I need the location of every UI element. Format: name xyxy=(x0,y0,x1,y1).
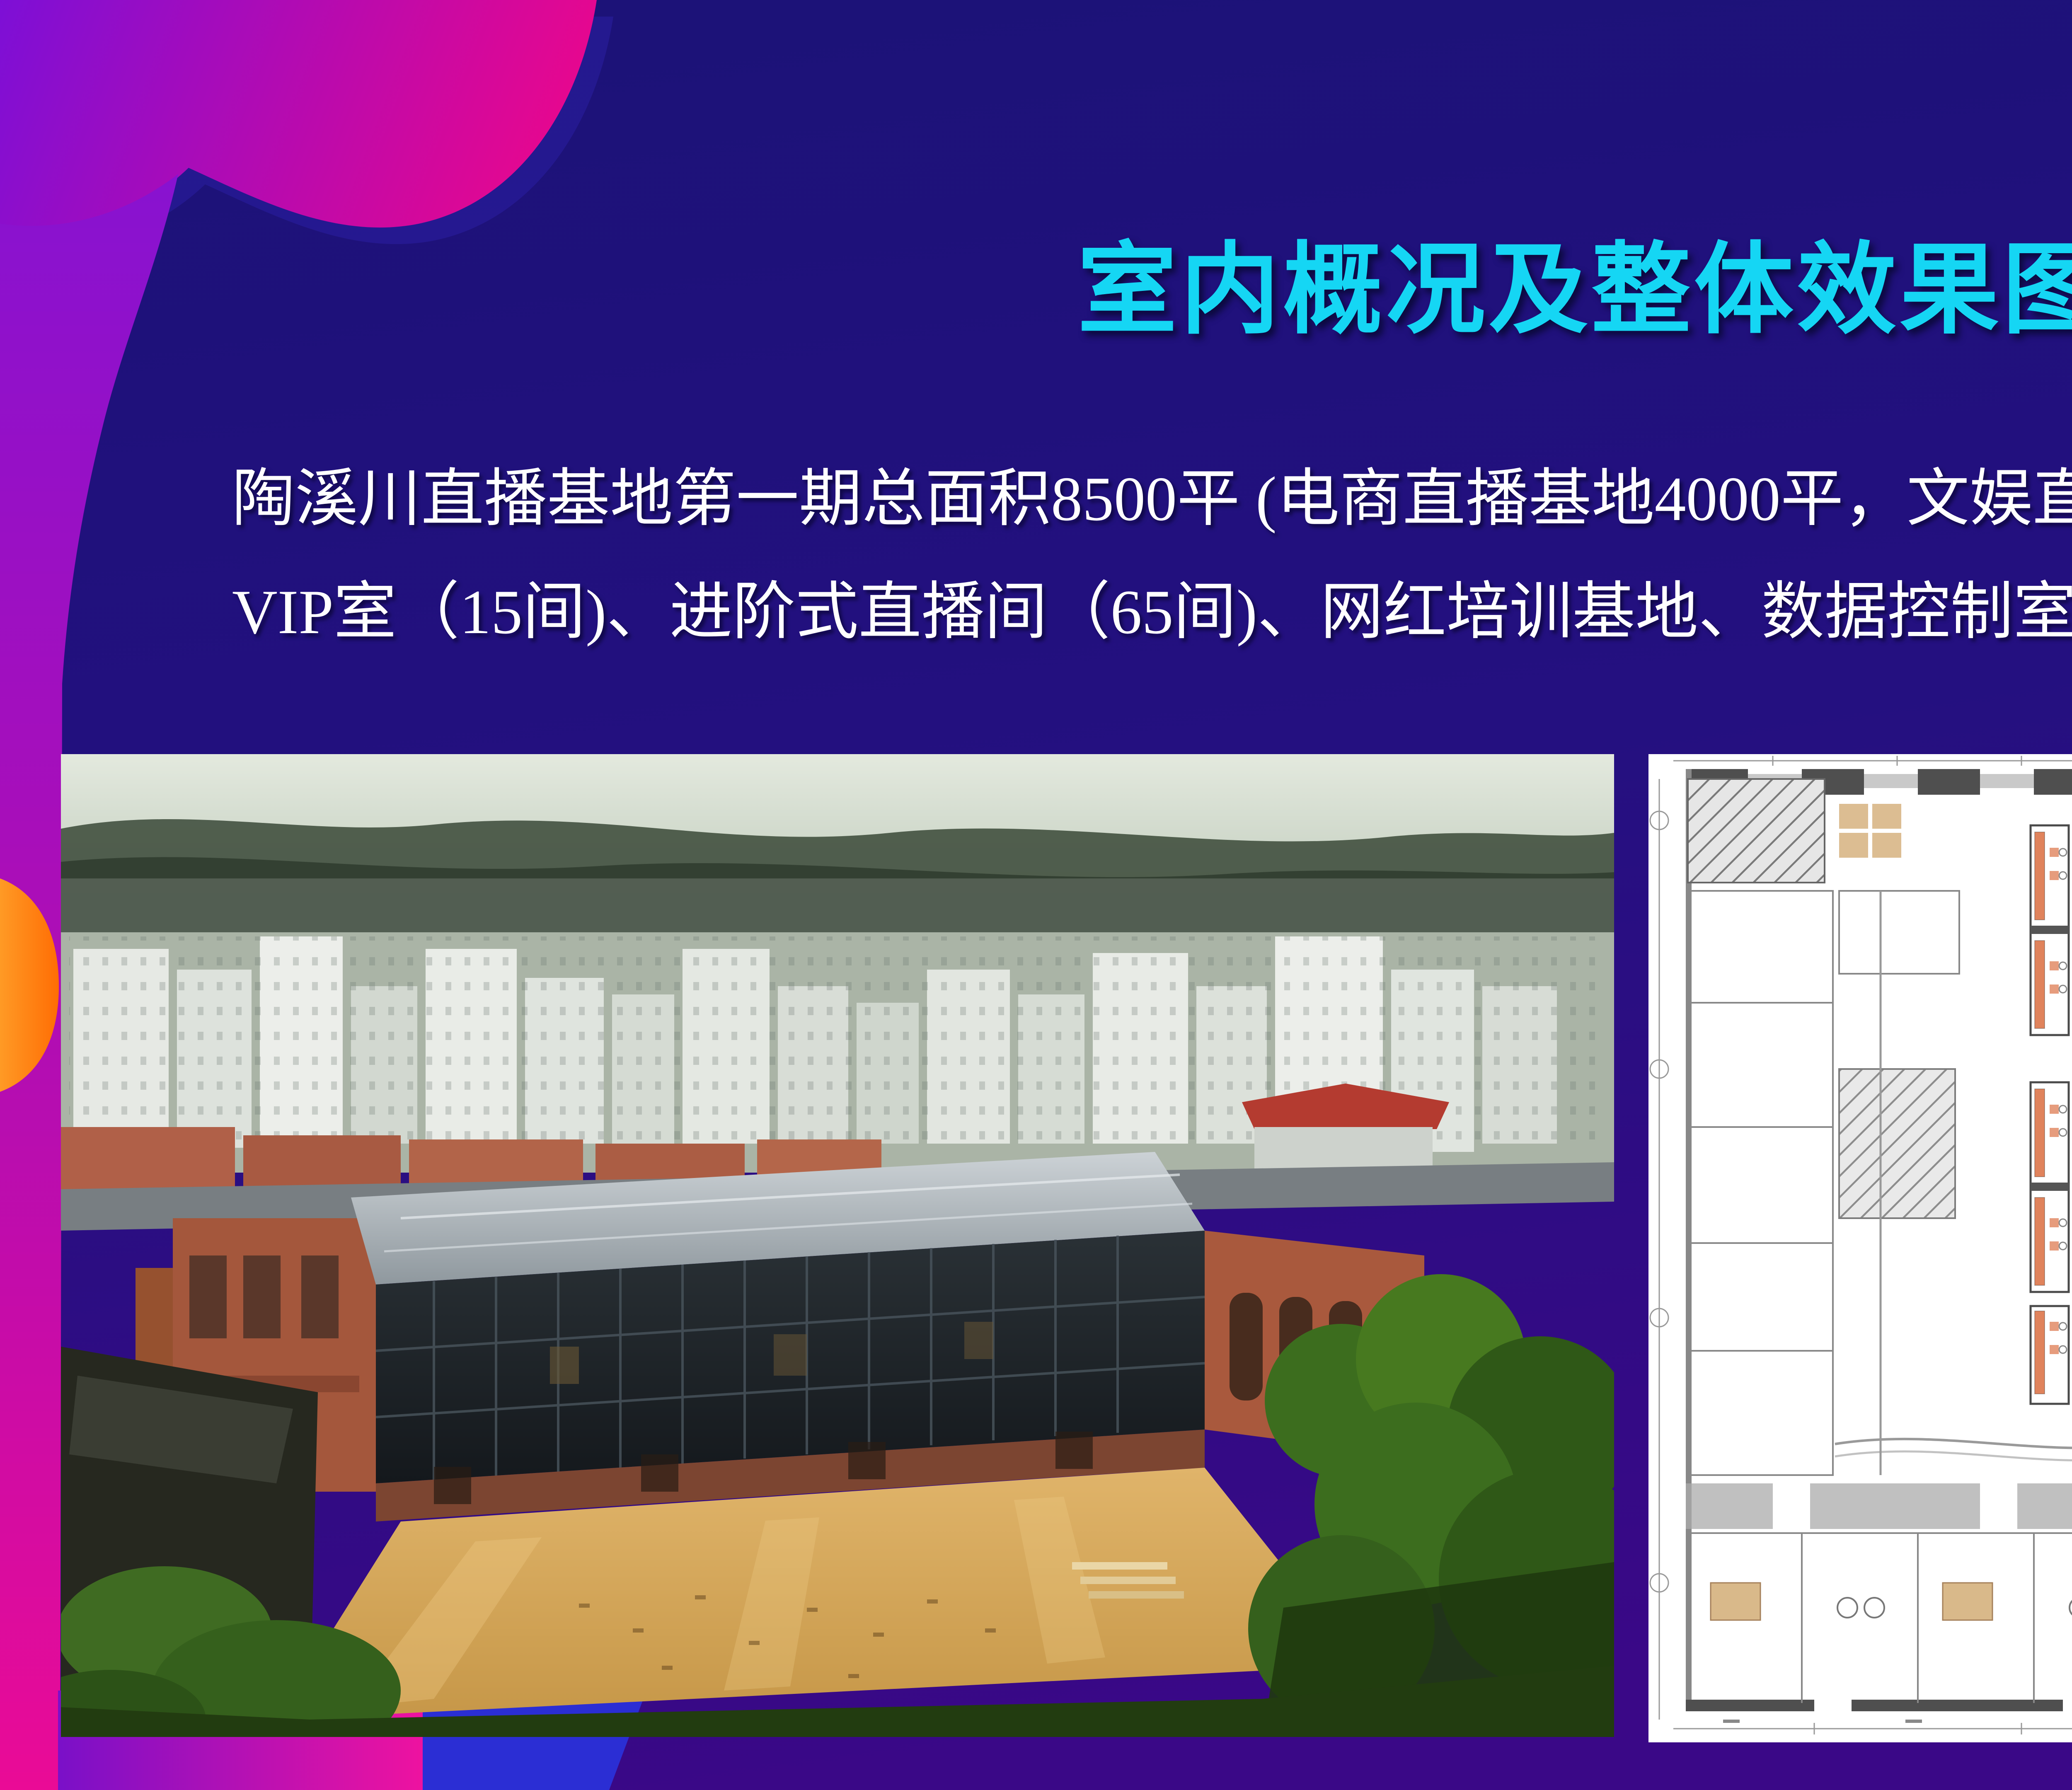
aerial-photo xyxy=(61,754,1614,1737)
intro-paragraph: 陶溪川直播基地第一期总面积8500平 (电商直播基地4000平，文娱直播基地45… xyxy=(232,443,2072,669)
photo-city-skyline xyxy=(61,932,1614,1193)
floor-plan-drawing: .oB{color:#e0835c}.bB{color:#8ec7e2}.tB{… xyxy=(1648,754,2072,1742)
page-title: 室内概况及整体效果图 xyxy=(0,209,2072,353)
aerial-photo-illustration xyxy=(61,754,1614,1737)
intro-text-line-2: VIP室（15间)、进阶式直播间（65间)、网红培训基地、数据控制室、 录音棚、… xyxy=(232,556,2072,669)
intro-text-line-1: 陶溪川直播基地第一期总面积8500平 (电商直播基地4000平，文娱直播基地45… xyxy=(232,443,2072,556)
presentation-slide: 室内概况及整体效果图 陶溪川直播基地第一期总面积8500平 (电商直播基地400… xyxy=(0,0,2072,1790)
floor-plan-image: .oB{color:#e0835c}.bB{color:#8ec7e2}.tB{… xyxy=(1648,754,2072,1742)
